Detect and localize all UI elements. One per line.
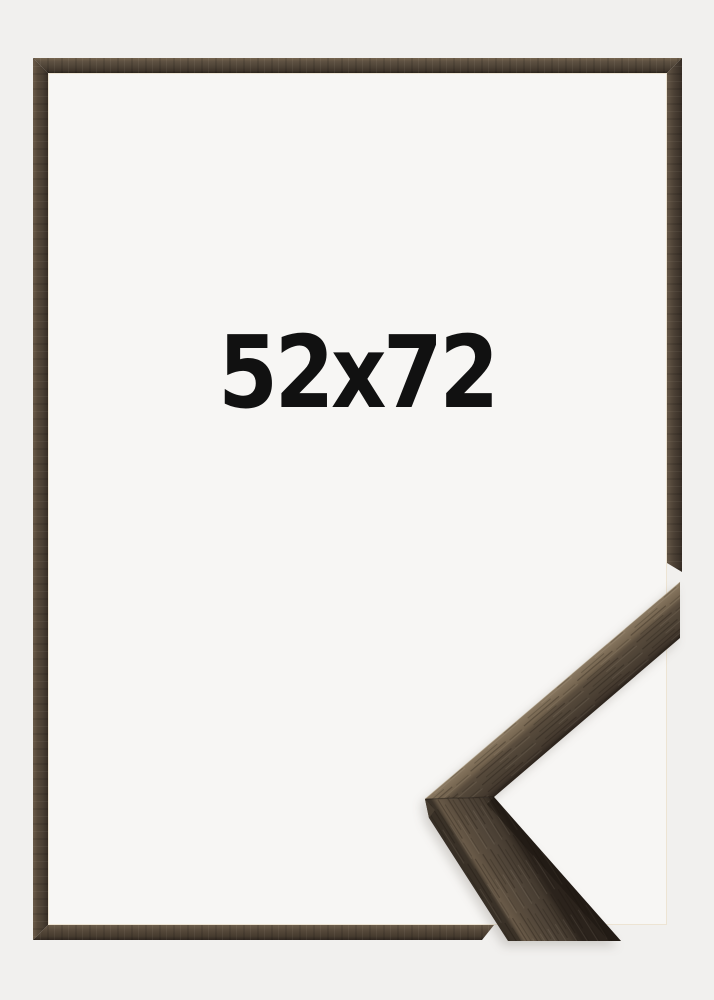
frame-corner-profile-icon xyxy=(0,0,714,1000)
product-image: 52x72 xyxy=(0,0,714,1000)
corner-detail-top-edge-highlight xyxy=(425,582,680,799)
